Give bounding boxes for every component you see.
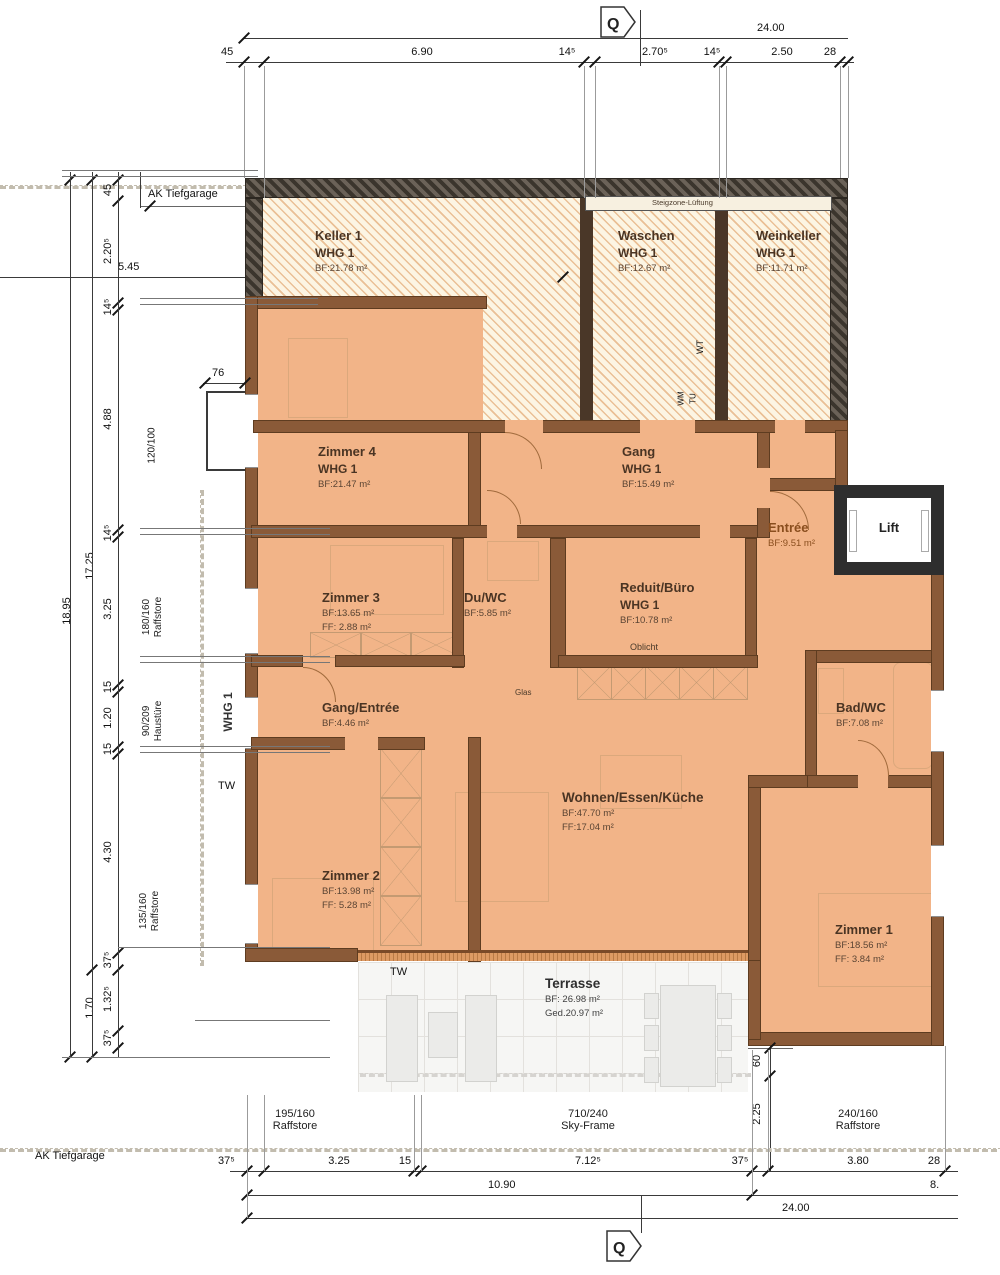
wardrobe — [380, 748, 422, 799]
wall-zimmer4-right — [468, 432, 481, 538]
dim-stub-line — [62, 170, 258, 171]
dim-bottom-seg: 7.12⁵ — [566, 1155, 610, 1167]
label-ak-tiefgarage-bottom: AK Tiefgarage — [35, 1150, 105, 1162]
chair — [644, 993, 659, 1019]
room-wohnen: Wohnen/Essen/Küche BF:47.70 m² FF:17.04 … — [562, 790, 704, 833]
dim-left-170: 1.70 — [84, 973, 96, 1043]
wardrobe — [380, 846, 422, 897]
garage-wall-top — [245, 178, 848, 198]
dim-extension-line — [595, 66, 596, 198]
dim-extension-line — [719, 66, 720, 198]
room-zimmer3: Zimmer 3 BF:13.65 m² FF: 2.88 m² — [322, 590, 380, 633]
dim-top-seg: 45 — [221, 46, 233, 58]
dim-left-375b: 37⁵ — [102, 1003, 114, 1073]
lounger — [465, 995, 497, 1082]
kitchen-cabinet — [679, 665, 714, 700]
chair — [717, 1025, 732, 1051]
dim-left-1895: 18.95 — [61, 576, 73, 646]
dim-extension-line — [247, 1095, 248, 1218]
dim-extension-line — [848, 66, 849, 178]
dim-stub-line — [118, 947, 330, 948]
room-zimmer2: Zimmer 2 BF:13.98 m² FF: 5.28 m² — [322, 868, 380, 911]
window-right-1 — [931, 690, 944, 752]
wall-waschen-weinkeller — [715, 198, 728, 420]
opening-raffstore-240: 240/160 Raffstore — [808, 1108, 908, 1132]
dim-stub-line — [140, 534, 330, 535]
dim-left-120-100: 120/100 — [147, 411, 158, 481]
shower-duwc — [487, 541, 539, 581]
door-gap — [858, 775, 888, 788]
dim-extension-line — [244, 66, 245, 178]
door-gap — [757, 468, 770, 508]
room-terrasse: Terrasse BF: 26.98 m² Ged.20.97 m² — [545, 976, 603, 1019]
dim-left-raffstore-180: 180/160 Raffstore — [141, 570, 165, 664]
bed-zimmer4 — [288, 338, 348, 418]
dim-stub-line — [62, 176, 258, 177]
dim-top-seg: 28 — [818, 46, 842, 58]
dim-extension-line — [640, 10, 641, 66]
dim-top-seg: 6.90 — [400, 46, 444, 58]
room-reduit: Reduit/Büro WHG 1 BF:10.78 m² — [620, 580, 694, 626]
dim-line-top-total — [244, 38, 848, 39]
door-gap — [700, 525, 730, 538]
wall-zimmer2-top — [251, 737, 425, 750]
dim-line-right — [770, 1046, 771, 1171]
dim-extension-line — [264, 66, 265, 198]
window-left-3 — [245, 884, 258, 944]
wall-zimmer2-right — [468, 737, 481, 962]
wall-bottom-left — [245, 948, 358, 962]
dim-bottom-seg: 28 — [924, 1155, 944, 1167]
dim-stub-line — [62, 1057, 330, 1058]
dim-line-76 — [203, 383, 247, 384]
chair — [717, 993, 732, 1019]
dim-extension-line — [118, 172, 119, 1058]
lift-door-right — [921, 510, 929, 552]
dim-extension-line — [584, 66, 585, 198]
window-120-100 — [206, 391, 250, 471]
wall-wohnen-zimmer1 — [748, 787, 761, 962]
dim-extension-line — [641, 1195, 642, 1233]
wall-gang-entree-b — [335, 655, 465, 667]
room-weinkeller: Weinkeller WHG 1 BF:11.71 m² — [756, 228, 821, 274]
dim-extension-line — [140, 172, 141, 208]
wall-outer-right-upper — [835, 430, 848, 487]
label-ak-tiefgarage-top: AK Tiefgarage — [148, 188, 218, 200]
dim-stub-line — [140, 528, 330, 529]
dim-left-488: 4.88 — [102, 384, 114, 454]
label-tw-terrace: TW — [390, 966, 407, 978]
room-badwc: Bad/WC BF:7.08 m² — [836, 700, 886, 729]
chair — [644, 1057, 659, 1083]
dim-left-76: 76 — [212, 367, 224, 379]
chair — [644, 1025, 659, 1051]
wardrobe — [380, 895, 422, 946]
window-right-2 — [931, 845, 944, 917]
label-glas: Glas — [515, 688, 531, 697]
floor-plan: Q 24.00 45 6.90 14⁵ 2.70⁵ 14⁵ 2.50 28 AK… — [0, 0, 1000, 1275]
room-zimmer1: Zimmer 1 BF:18.56 m² FF: 3.84 m² — [835, 922, 893, 965]
dim-bottom-seg: 3.80 — [838, 1155, 878, 1167]
wall-kitchen-top — [558, 655, 758, 668]
dim-left-545: 5.45 — [118, 261, 139, 273]
svg-text:Q: Q — [613, 1240, 625, 1257]
dim-extension-line — [92, 172, 93, 1058]
dim-top-seg: 2.50 — [760, 46, 804, 58]
dim-extension-line — [752, 1050, 753, 1195]
wall-badwc-left — [805, 650, 817, 788]
dim-stub-line — [140, 752, 330, 753]
svg-text:Q: Q — [607, 16, 619, 33]
lift-door-left — [849, 510, 857, 552]
wardrobe — [380, 797, 422, 848]
wall-keller-waschen — [580, 198, 593, 420]
wall-reduit-right — [745, 538, 757, 668]
dim-left-1725: 17.25 — [84, 531, 96, 601]
room-lift: Lift — [862, 520, 916, 535]
dim-left-45: 45 — [102, 155, 114, 225]
dim-line-bottom-total — [247, 1218, 958, 1219]
dim-bottom-seg: 37⁵ — [726, 1155, 754, 1167]
dim-line-bottom-sub — [247, 1195, 958, 1196]
dim-extension-line — [70, 172, 71, 1058]
room-entree: Entrée BF:9.51 m² — [768, 520, 815, 549]
skyframe-sill — [358, 953, 748, 961]
door-gap — [775, 420, 805, 433]
dim-line-top-segments — [226, 62, 854, 63]
dim-left-raffstore-135: 135/160 Raffstore — [138, 864, 162, 958]
dashed-line-garage-bottom — [0, 1148, 1000, 1152]
dim-bottom-seg: 3.25 — [319, 1155, 359, 1167]
dim-extension-line — [414, 1095, 415, 1171]
dim-left-haustuere: 90/209 Haustüre — [141, 674, 165, 768]
label-oblicht: Oblicht — [630, 642, 658, 652]
terrace-table — [660, 985, 716, 1087]
room-duwc: Du/WC BF:5.85 m² — [464, 590, 511, 619]
label-tw-left: TW — [218, 780, 235, 792]
wall-duwc-reduit — [550, 538, 566, 668]
label-whg1-vertical: WHG 1 — [221, 677, 235, 747]
garage-wall-right — [830, 198, 848, 432]
dim-bottom-seg: 37⁵ — [218, 1155, 235, 1167]
wall-zimmer3-duwc — [452, 538, 464, 668]
dim-bottom-8: 8. — [930, 1179, 939, 1191]
wall-badwc-top — [805, 650, 943, 663]
dim-stub-line — [140, 656, 330, 657]
door-gap — [345, 737, 378, 750]
door-gap — [487, 525, 517, 538]
kitchen-cabinet — [645, 665, 680, 700]
room-keller: Keller 1 WHG 1 BF:21.78 m² — [315, 228, 367, 274]
wall-zimmer1-top — [748, 775, 808, 788]
dim-extension-line — [421, 1095, 422, 1171]
room-gang: Gang WHG 1 BF:15.49 m² — [622, 444, 674, 490]
section-marker-bottom: Q — [606, 1230, 644, 1262]
dim-left-15b: 15 — [102, 714, 114, 784]
kitchen-cabinet — [577, 665, 612, 700]
dim-bottom-1090: 10.90 — [488, 1179, 516, 1191]
dim-extension-line — [945, 1046, 946, 1171]
section-marker-top: Q — [600, 6, 638, 38]
dim-extension-line — [768, 1050, 769, 1171]
room-gang-entree: Gang/Entrée BF:4.46 m² — [322, 700, 399, 729]
label-steigzone: Steigzone-Lüftung — [652, 198, 713, 207]
door-gap — [505, 420, 543, 433]
room-waschen: Waschen WHG 1 BF:12.67 m² — [618, 228, 675, 274]
dim-stub-line — [140, 662, 330, 663]
dim-bottom-total: 24.00 — [782, 1202, 810, 1214]
bathtub — [893, 662, 933, 769]
kitchen-cabinet — [611, 665, 646, 700]
dim-extension-line — [264, 1095, 265, 1171]
dim-left-325: 3.25 — [102, 574, 114, 644]
dim-line-bottom-segments — [230, 1171, 958, 1172]
dim-top-total: 24.00 — [757, 22, 785, 34]
dim-stub-line — [140, 298, 318, 299]
chair — [717, 1057, 732, 1083]
dim-stub-line — [195, 1020, 330, 1021]
door-gap — [640, 420, 695, 433]
dim-stub-line — [140, 304, 318, 305]
kitchen-cabinet — [713, 665, 748, 700]
window-left-2 — [245, 588, 258, 654]
dim-top-seg: 14⁵ — [552, 46, 582, 58]
wall-zimmer1-bottom — [748, 1032, 944, 1046]
dim-left-430: 4.30 — [102, 817, 114, 887]
dim-extension-line — [840, 66, 841, 178]
room-zimmer4: Zimmer 4 WHG 1 BF:21.47 m² — [318, 444, 376, 490]
opening-skyframe-710: 710/240 Sky-Frame — [538, 1108, 638, 1132]
dim-stub-line — [140, 746, 330, 747]
lounger — [386, 995, 418, 1082]
dashed-boundary — [200, 490, 204, 966]
side-table — [428, 1012, 458, 1058]
wall-outer-right — [931, 572, 944, 1046]
dim-extension-line — [726, 66, 727, 198]
